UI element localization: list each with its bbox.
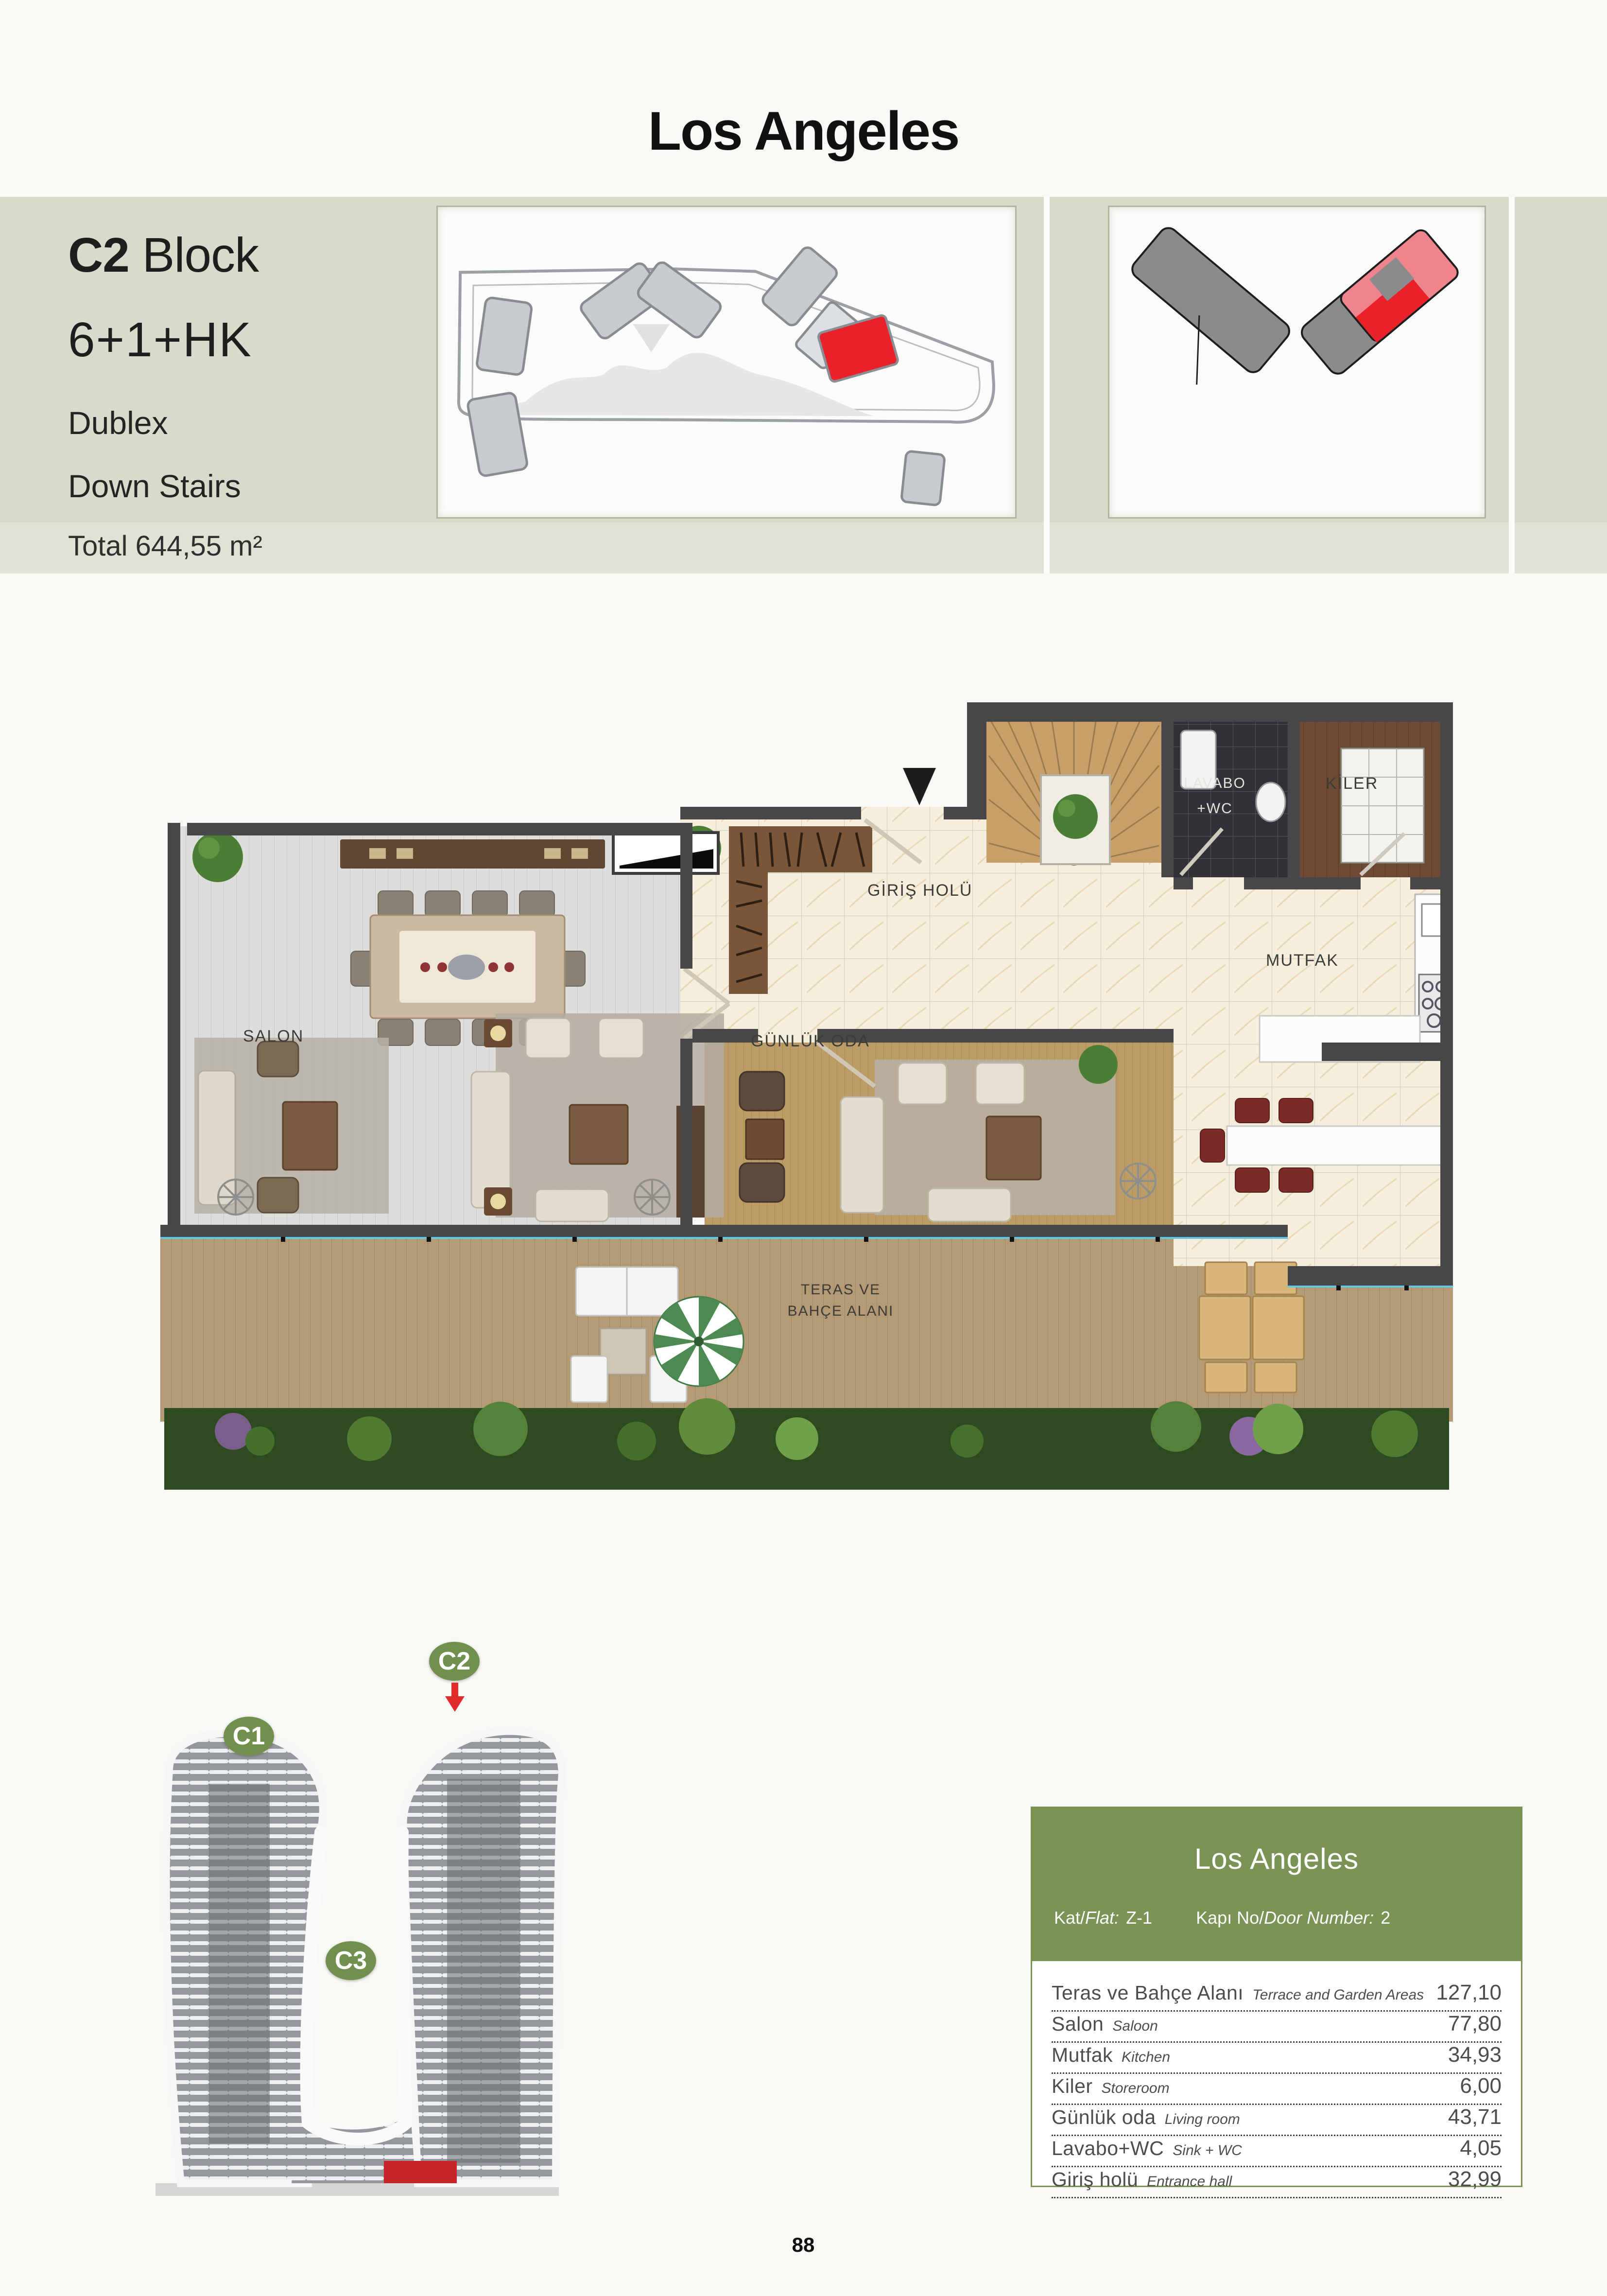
row-label-tr: Lavabo+WC	[1052, 2137, 1164, 2160]
band-divider-1	[1044, 197, 1050, 574]
flat-prefix: Kat/	[1054, 1908, 1085, 1928]
row-value: 77,80	[1448, 2012, 1502, 2036]
table-title: Los Angeles	[1032, 1842, 1521, 1876]
row-value: 43,71	[1448, 2105, 1502, 2129]
row-label-en: Entrance hall	[1147, 2174, 1232, 2190]
block-code: C2	[68, 228, 129, 282]
label-mutfak: MUTFAK	[1266, 951, 1339, 970]
unit-downstairs: Down Stairs	[68, 468, 241, 504]
badge-c2: C2	[429, 1642, 480, 1681]
band-divider-2	[1509, 197, 1515, 574]
table-body: Teras ve Bahçe Alanı Terrace and Garden …	[1052, 1981, 1502, 2198]
table-row: Kiler Storeroom 6,00	[1052, 2074, 1502, 2105]
floor-plan-drawing	[160, 702, 1453, 1490]
row-value: 6,00	[1460, 2074, 1502, 2098]
table-row: Salon Saloon 77,80	[1052, 2012, 1502, 2043]
badge-c3: C3	[326, 1941, 376, 1980]
siteplan-box	[436, 206, 1017, 519]
flat-label-en: Flat:	[1085, 1908, 1119, 1928]
table-header: Los Angeles Kat/Flat:Z-1 Kapı No/Door Nu…	[1032, 1808, 1521, 1961]
row-label-tr: Teras ve Bahçe Alanı	[1052, 1982, 1244, 2004]
wc-toilet	[1256, 783, 1285, 821]
floor-plan: SALON GİRİŞ HOLÜ LAVABO +WC KİLER MUTFAK…	[160, 702, 1453, 1490]
building-drawing	[131, 1618, 588, 2221]
row-label-tr: Salon	[1052, 2013, 1104, 2035]
block-title: C2 Block	[68, 227, 259, 283]
row-label-en: Kitchen	[1122, 2049, 1170, 2066]
table-row: Teras ve Bahçe Alanı Terrace and Garden …	[1052, 1981, 1502, 2012]
row-value: 34,93	[1448, 2043, 1502, 2067]
row-value: 127,10	[1436, 1981, 1502, 2005]
block-diagram-box	[1108, 206, 1486, 519]
unit-type: 6+1+HK	[68, 312, 252, 368]
highlighted-floors	[384, 2161, 457, 2183]
label-wc: +WC	[1178, 800, 1251, 817]
stair-plant	[1053, 794, 1098, 839]
block-arm-left	[1128, 224, 1293, 384]
page-number: 88	[767, 2233, 840, 2257]
table-row: Giriş holü Entrance hall 32,99	[1052, 2167, 1502, 2198]
block-word: Block	[129, 228, 259, 282]
label-kiler: KİLER	[1326, 774, 1378, 793]
flat-value: Z-1	[1126, 1908, 1152, 1928]
row-label-tr: Kiler	[1052, 2075, 1093, 2098]
table-row: Günlük oda Living room 43,71	[1052, 2105, 1502, 2136]
total-area: Total 644,55 m²	[68, 530, 262, 562]
label-lavabo: LAVABO	[1178, 775, 1251, 792]
door-value: 2	[1381, 1908, 1390, 1928]
stair-plant-leaf	[1058, 800, 1075, 817]
label-salon: SALON	[243, 1027, 304, 1046]
row-label-tr: Mutfak	[1052, 2044, 1113, 2067]
tower-c2-core	[447, 1779, 520, 2163]
entrance-arrow-icon	[903, 768, 936, 805]
siteplan-map	[438, 207, 1012, 514]
row-label-en: Living room	[1165, 2111, 1240, 2128]
label-teras-1: TERAS VE	[782, 1282, 899, 1298]
row-value: 32,99	[1448, 2167, 1502, 2192]
row-label-tr: Günlük oda	[1052, 2106, 1156, 2129]
label-giris-holu: GİRİŞ HOLÜ	[867, 881, 972, 900]
wall-niche	[613, 833, 718, 873]
table-row: Mutfak Kitchen 34,93	[1052, 2043, 1502, 2074]
red-arrow-down-icon	[445, 1683, 465, 1713]
table-row: Lavabo+WC Sink + WC 4,05	[1052, 2136, 1502, 2167]
door-field: Kapı No/Door Number:2	[1196, 1908, 1390, 1928]
badge-c1: C1	[224, 1717, 274, 1756]
block-diagram	[1109, 207, 1482, 514]
kitchen-island	[1227, 1126, 1451, 1165]
flat-field: Kat/Flat:Z-1	[1054, 1908, 1152, 1928]
building-illustration: C1 C2 C3	[131, 1618, 588, 2221]
unit-dublex: Dublex	[68, 404, 168, 441]
row-label-en: Sink + WC	[1173, 2142, 1242, 2159]
table-subheader: Kat/Flat:Z-1 Kapı No/Door Number:2	[1054, 1908, 1499, 1928]
label-teras-2: BAHÇE ALANI	[782, 1303, 899, 1320]
unit-info-table: Los Angeles Kat/Flat:Z-1 Kapı No/Door Nu…	[1031, 1807, 1522, 2187]
umbrella-icon	[654, 1297, 743, 1386]
row-label-en: Storeroom	[1102, 2080, 1170, 2097]
salon-seating-left	[194, 1038, 389, 1214]
row-label-tr: Giriş holü	[1052, 2168, 1138, 2191]
row-label-en: Saloon	[1112, 2018, 1158, 2035]
tower-c1-core	[209, 1784, 270, 2143]
page-title: Los Angeles	[0, 100, 1607, 162]
row-value: 4,05	[1460, 2136, 1502, 2160]
door-label-en: Door Number:	[1264, 1908, 1374, 1928]
door-prefix: Kapı No/	[1196, 1908, 1264, 1928]
block-arm-right	[1298, 227, 1461, 377]
label-gunluk-oda: GÜNLÜK ODA	[751, 1032, 870, 1051]
kitchen-floor	[1174, 877, 1453, 1266]
row-label-en: Terrace and Garden Areas	[1252, 1987, 1424, 2003]
u-band	[307, 1832, 406, 2139]
